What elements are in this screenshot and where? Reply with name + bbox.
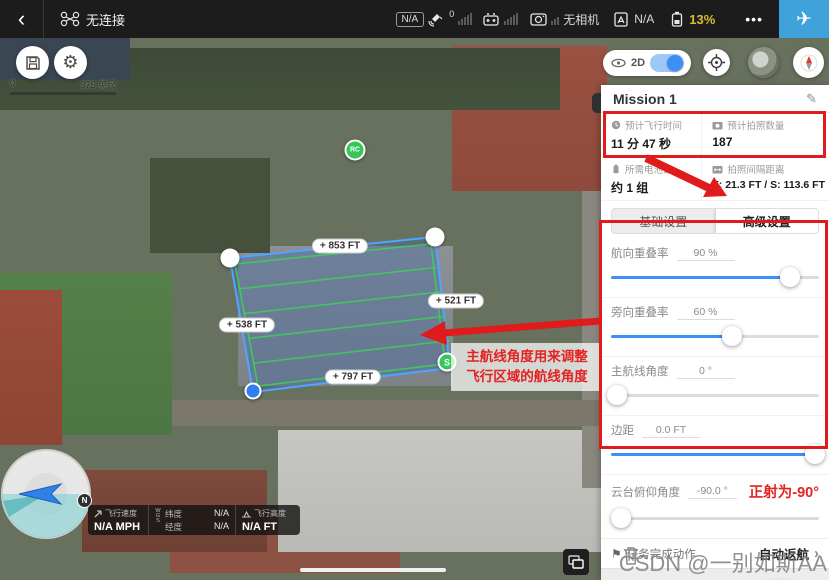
app-screen: RC S + 853 FT + 521 FT + 538 FT + 797 FT… xyxy=(0,0,829,580)
stat-flight-time: 预计飞行时间 11 分 47 秒 xyxy=(601,113,702,157)
stat-photo-interval: 拍照间隔距离 F: 21.3 FT / S: 113.6 FT xyxy=(702,157,829,201)
edge-length-label-bottom: + 797 FT xyxy=(325,370,381,385)
lng-value: N/A xyxy=(214,521,229,533)
slider-label: 主航线角度 xyxy=(611,363,669,379)
toggle-knob xyxy=(667,55,683,71)
gps-mode-badge: N/A xyxy=(396,12,425,27)
slider-label: 旁向重叠率 xyxy=(611,304,669,320)
route-note-line2: 飞行区域的航线角度 xyxy=(466,367,588,387)
battery-small-icon xyxy=(611,164,621,174)
rc-signal-bars xyxy=(504,13,518,25)
gps-cell: WGS 纬度N/A 经度N/A xyxy=(148,505,235,535)
altitude-label: 飞行高度 xyxy=(254,508,286,519)
slider-gimbal-pitch: 云台俯仰角度-90.0 °正射为-90° xyxy=(601,475,829,538)
status-topbar: ‹ 无连接 N/A 0 无相机 N/A 13% ••• xyxy=(0,0,829,38)
stat-value: 187 xyxy=(712,135,825,149)
mission-stats-grid: 预计飞行时间 11 分 47 秒 预计拍照数量 187 所需电池数 约 1 组 … xyxy=(601,113,829,201)
stat-label: 拍照间隔距离 xyxy=(727,162,784,176)
trash-icon[interactable] xyxy=(622,546,640,566)
slider-thumb[interactable] xyxy=(611,508,631,528)
more-menu-button[interactable]: ••• xyxy=(729,11,779,27)
slider-thumb[interactable] xyxy=(722,326,742,346)
speed-cell: 飞行速度 N/A MPH xyxy=(88,505,148,535)
lng-label: 经度 xyxy=(165,521,182,533)
stat-label: 所需电池数 xyxy=(625,162,673,176)
battery-icon xyxy=(670,11,684,27)
altitude-icon xyxy=(242,510,251,518)
slider-track[interactable] xyxy=(611,326,819,346)
slider-value-input[interactable]: 0.0 FT xyxy=(642,423,700,438)
polygon-vertex-handle-selected[interactable] xyxy=(245,383,262,400)
connection-status-text: 无连接 xyxy=(86,10,125,29)
speed-arrow-icon xyxy=(94,510,102,518)
flight-mode-value: N/A xyxy=(634,12,654,26)
layers-icon xyxy=(568,555,584,569)
slider-label: 云台俯仰角度 xyxy=(611,484,680,500)
stat-value: 约 1 组 xyxy=(611,179,697,196)
back-icon: ‹ xyxy=(18,6,25,32)
crosshair-icon xyxy=(708,54,725,71)
satellite-icon xyxy=(428,12,445,27)
route-note-line1: 主航线角度用来调整 xyxy=(466,347,588,367)
finish-action-label: 任务完成动作 xyxy=(627,546,759,562)
tab-advanced-settings[interactable]: 高级设置 xyxy=(715,209,819,233)
edge-length-label-left: + 538 FT xyxy=(219,318,275,333)
compass-dial xyxy=(1,449,91,539)
map-mode-pill: 2D xyxy=(603,50,691,76)
flight-mode-status[interactable]: N/A xyxy=(613,12,654,27)
clock-icon xyxy=(611,120,621,130)
slider-thumb[interactable] xyxy=(780,267,800,287)
slider-label: 边距 xyxy=(611,422,634,438)
lat-label: 纬度 xyxy=(165,508,182,520)
lat-value: N/A xyxy=(214,508,229,520)
slider-label: 航向重叠率 xyxy=(611,245,669,261)
slider-value-input[interactable]: 0 ° xyxy=(677,364,735,379)
compass-needle-icon xyxy=(800,54,818,72)
map-layers-button[interactable] xyxy=(563,549,589,575)
scale-distance: 375 英尺 xyxy=(80,78,116,91)
advanced-settings-sliders: 航向重叠率90 % 旁向重叠率60 % 主航线角度0 ° 边距0.0 FT 云台… xyxy=(601,239,829,538)
finish-action-value: 自动返航 xyxy=(759,544,809,563)
stat-label: 预计飞行时间 xyxy=(625,118,682,132)
stat-battery-count: 所需电池数 约 1 组 xyxy=(601,157,702,201)
telemetry-bar: 飞行速度 N/A MPH WGS 纬度N/A 经度N/A 飞行高度 N/A FT xyxy=(88,505,300,535)
speed-label: 飞行速度 xyxy=(105,508,137,519)
map-orientation-button[interactable] xyxy=(793,47,824,78)
mission-settings-button[interactable]: ⚙ xyxy=(54,46,87,79)
edge-length-label-right: + 521 FT xyxy=(428,294,484,309)
home-indicator xyxy=(300,568,446,572)
battery-status[interactable]: 13% xyxy=(670,11,715,27)
remote-controller-icon xyxy=(482,12,500,26)
photo-icon xyxy=(712,121,723,130)
battery-percent: 13% xyxy=(689,12,715,27)
stat-label: 预计拍照数量 xyxy=(727,118,784,132)
flag-icon: ⚑ xyxy=(611,547,622,561)
polygon-vertex-handle[interactable] xyxy=(221,249,240,268)
gps-system-label: WGS xyxy=(155,508,161,533)
altitude-value: N/A FT xyxy=(242,521,294,533)
camera-status-text: 无相机 xyxy=(563,11,599,28)
rc-location-marker[interactable]: RC xyxy=(345,140,366,161)
slider-value-input[interactable]: 90 % xyxy=(677,246,735,261)
rc-marker-label: RC xyxy=(350,147,360,154)
2d-3d-toggle[interactable] xyxy=(650,54,684,72)
polygon-vertex-handle[interactable] xyxy=(426,228,445,247)
slider-track[interactable] xyxy=(611,385,819,405)
slider-course-overlap: 航向重叠率90 % xyxy=(601,239,829,298)
takeoff-button[interactable]: ✈ xyxy=(779,0,829,38)
aircraft-connection-status[interactable]: 无连接 xyxy=(60,10,125,29)
slider-value-input[interactable]: 60 % xyxy=(677,305,735,320)
locate-button[interactable] xyxy=(703,49,730,76)
drone-icon xyxy=(60,11,80,27)
edge-length-label-top: + 853 FT xyxy=(312,239,368,254)
slider-main-route-angle: 主航线角度0 ° xyxy=(601,357,829,416)
ellipsis-icon: ••• xyxy=(745,11,763,27)
gps-status[interactable]: N/A 0 xyxy=(396,12,473,27)
edit-mission-button[interactable]: ✎ xyxy=(806,91,817,107)
satellite-count: 0 xyxy=(449,9,454,19)
back-button[interactable]: ‹ xyxy=(0,0,44,38)
map-scale-bar: 0375 英尺 xyxy=(10,78,116,95)
mission-header: Mission 1 ✎ xyxy=(601,85,829,113)
start-marker-label: S xyxy=(444,357,450,367)
slider-track[interactable] xyxy=(611,267,819,287)
slider-margin: 边距0.0 FT xyxy=(601,416,829,475)
mission-panel: Mission 1 ✎ 预计飞行时间 11 分 47 秒 预计拍照数量 187 … xyxy=(601,85,829,580)
airplane-icon: ✈ xyxy=(796,8,812,31)
chevron-right-icon: › xyxy=(814,545,819,562)
mission-title: Mission 1 xyxy=(613,91,677,107)
camera-signal-bars xyxy=(551,13,559,25)
slider-track[interactable] xyxy=(611,444,819,464)
panel-collapse-tab[interactable] xyxy=(592,93,601,113)
tab-basic-settings[interactable]: 基础设置 xyxy=(612,209,715,233)
interval-icon xyxy=(712,165,723,174)
stat-value: F: 21.3 FT / S: 113.6 FT xyxy=(712,179,825,191)
slider-value-input[interactable]: -90.0 ° xyxy=(688,484,737,499)
annotation-route-note: 主航线角度用来调整 飞行区域的航线角度 xyxy=(451,343,603,391)
map-2d-label: 2D xyxy=(631,57,645,69)
scale-line xyxy=(10,92,116,95)
panel-divider xyxy=(601,568,829,580)
ortho-annotation-text: 正射为-90° xyxy=(749,481,819,502)
speed-value: N/A MPH xyxy=(94,521,142,533)
slider-side-overlap: 旁向重叠率60 % xyxy=(601,298,829,357)
pencil-icon: ✎ xyxy=(806,91,817,106)
flight-mode-icon xyxy=(613,12,629,27)
stat-value: 11 分 47 秒 xyxy=(611,135,697,152)
scale-zero: 0 xyxy=(10,78,15,91)
altitude-cell: 飞行高度 N/A FT xyxy=(235,505,300,535)
settings-tabs: 基础设置 高级设置 xyxy=(611,208,819,234)
save-icon xyxy=(25,55,41,71)
slider-thumb[interactable] xyxy=(607,385,627,405)
slider-track[interactable] xyxy=(611,508,819,528)
drone-view-icon xyxy=(611,57,626,69)
slider-thumb[interactable] xyxy=(805,444,825,464)
attitude-compass-widget: N xyxy=(1,449,91,539)
stat-photo-count: 预计拍照数量 187 xyxy=(702,113,829,157)
gps-signal-bars xyxy=(458,13,472,25)
save-mission-button[interactable] xyxy=(16,46,49,79)
minimap-button[interactable] xyxy=(748,47,779,78)
rc-signal-status[interactable] xyxy=(482,12,518,26)
camera-status[interactable]: 无相机 xyxy=(530,11,599,28)
gear-icon: ⚙ xyxy=(62,52,78,73)
camera-icon xyxy=(530,13,547,26)
